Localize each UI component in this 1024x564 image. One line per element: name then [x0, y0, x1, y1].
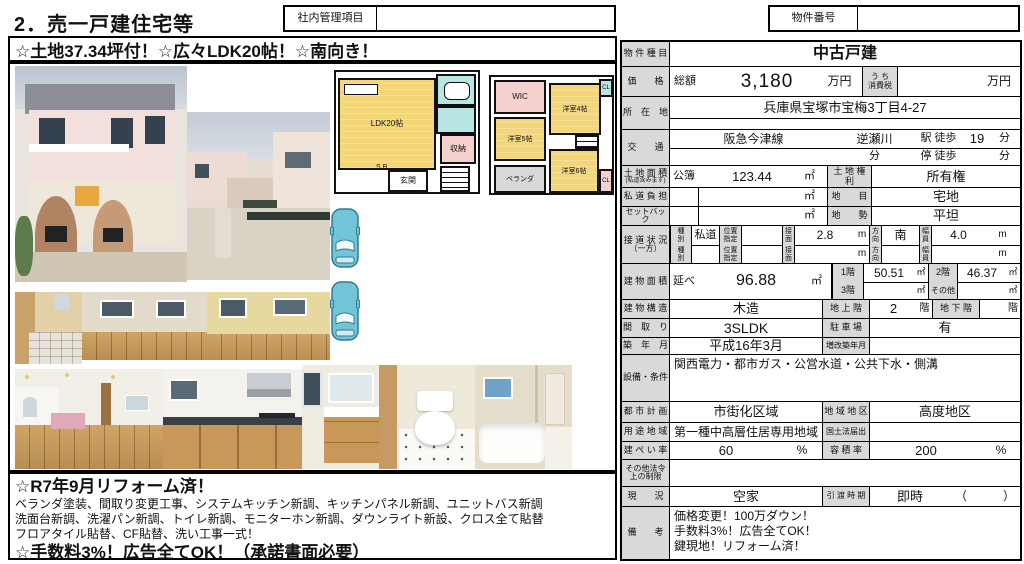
label-price: 価 格: [622, 67, 670, 96]
stairs-2f: [575, 135, 599, 149]
room-west5: 洋室5帖: [494, 117, 546, 161]
private-road-value: [699, 188, 792, 206]
road2-face-unit: m: [855, 245, 869, 264]
room-ldk-label: LDK20帖: [371, 120, 403, 128]
remarks-line-1: 価格変更！100万ダウン！: [674, 509, 814, 524]
row-coverage: 建 ぺ い 率 60 % 容 積 率 200 %: [622, 441, 1020, 459]
row-property-type: 物 件 種 目 中古戸建: [622, 42, 1020, 66]
building-total-label: 延べ: [670, 264, 710, 299]
label-city-plan: 都 市 計 画: [622, 402, 670, 422]
building-f2-value: 46.37: [958, 264, 1006, 282]
label-road-contact: 接 道 状 況 （一方）: [622, 226, 670, 263]
road-dir-label: 方 向: [869, 226, 882, 245]
structure-value: 木造: [670, 300, 822, 318]
setback-tag: [670, 207, 699, 225]
below-ground-value: [980, 300, 1006, 318]
row-land-area: 土 地 面 積 (私道含みます) 公簿 123.44 ㎡ 土 地 権 利 所有権: [622, 165, 1020, 187]
photo-kitchen: [163, 369, 310, 469]
row-remarks: 備 考 価格変更！100万ダウン！ 手数料3%！広告全てOK！ 鍵現地！リフォー…: [622, 506, 1020, 559]
remarks-line-3: 鍵現地！リフォーム済！: [674, 539, 806, 554]
access-bus-min-unit: 分: [837, 148, 912, 166]
remarks-value: 価格変更！100万ダウン！ 手数料3%！広告全てOK！ 鍵現地！リフォーム済！: [670, 507, 1020, 559]
coverage-value: 60: [670, 442, 782, 459]
property-detail-table: 物 件 種 目 中古戸建 価 格 総額 3,180 万円 う ち 消費税 万円 …: [620, 40, 1022, 561]
label-access: 交 通: [622, 130, 670, 165]
layout-value: 3SLDK: [670, 319, 822, 337]
note-line-3: 洗面台新調、洗濯パン新調、トイレ新調、モニターホン新調、ダウンライト新設、クロス…: [15, 512, 610, 527]
building-f1-value: 50.51: [864, 264, 914, 282]
built-date-value: 平成16年3月: [670, 338, 822, 354]
price-tax-label: う ち 消費税: [862, 67, 898, 96]
row-setback: セットバック ㎡ 地 勢 平坦: [622, 206, 1020, 225]
room-west4-label: 洋室4帖: [563, 106, 588, 113]
price-unit: 万円: [817, 67, 862, 96]
room-entrance: 玄関: [388, 170, 428, 192]
room-bath: [436, 74, 476, 106]
building-f2-label: 2階: [928, 264, 958, 282]
property-number-value: [858, 7, 1018, 30]
building-f3-unit: ㎡: [914, 282, 928, 300]
photo-exterior-driveway: [187, 112, 330, 280]
row-road-contact: 接 道 状 況 （一方） 種 別 私道 位置 指定 接 面 2.8 m 方 向 …: [622, 225, 1020, 263]
building-f2-unit: ㎡: [1006, 264, 1020, 282]
room-storage-label: 収納: [450, 145, 466, 153]
land-category-value: 宅地: [872, 188, 1020, 206]
photo-living-room: [15, 369, 163, 469]
room-wic-label: WIC: [512, 93, 528, 101]
terrain-label: 地 勢: [827, 207, 872, 225]
closet-top-label: CL: [602, 85, 610, 91]
room-west5-label: 洋室5帖: [508, 136, 533, 143]
photo-bathroom: [475, 365, 572, 469]
row-other-law: その他法令 上の制限: [622, 459, 1020, 486]
below-ground-label: 地 下 階: [932, 300, 980, 318]
land-category-label: 地 目: [827, 188, 872, 206]
room-west4: 洋室4帖: [549, 83, 601, 135]
road-dir-value: 南: [882, 226, 919, 245]
car-top-view-icon: [330, 280, 360, 342]
road2-width-unit: m: [985, 245, 1020, 264]
floorplan-2f: WIC 洋室4帖 CL 洋室5帖 ベランダ 洋室6帖 CL: [489, 75, 614, 195]
room-entrance-label: 玄関: [400, 177, 416, 185]
photo-entrance-hall: [15, 292, 82, 364]
label-coverage: 建 ぺ い 率: [622, 442, 670, 459]
land-rights-label: 土 地 権 利: [827, 166, 872, 187]
access-walk-label: 駅 徒歩: [912, 130, 965, 148]
delivery-paren: （ ）: [950, 487, 1020, 506]
land-area-value: 123.44: [712, 166, 792, 187]
row-facilities: 設備・条件 関西電力・都市ガス・公営水道・公共下水・側溝: [622, 354, 1020, 401]
closet-bottom-label: CL: [602, 178, 610, 184]
road-pos-value: [742, 226, 782, 245]
label-building-area: 建 物 面 積: [622, 264, 670, 299]
closet-top: CL: [599, 79, 613, 97]
label-address: 所 在 地: [622, 97, 670, 129]
closet-bottom: CL: [599, 169, 613, 193]
photo-toilet: [379, 365, 475, 469]
setback-value: [699, 207, 792, 225]
photo-bedroom-2: [207, 292, 330, 360]
catch-copy: ☆土地37.34坪付！☆広々LDK20帖！☆南向き！: [8, 36, 617, 62]
label-other-law: その他法令 上の制限: [622, 460, 670, 486]
internal-management-label: 社内管理項目: [285, 7, 377, 30]
other-law-value: [670, 460, 1020, 486]
label-status: 現 況: [622, 487, 670, 506]
status-value: 空家: [670, 487, 822, 506]
road2-type-label: 種 別: [670, 245, 692, 264]
building-f1-label: 1階: [832, 264, 864, 282]
road-width-unit: m: [985, 226, 1020, 245]
label-setback: セットバック: [622, 207, 670, 225]
above-floor-unit: 階: [917, 300, 932, 318]
room-washroom: [436, 106, 476, 134]
page-title: 2．売一戸建住宅等: [14, 8, 194, 37]
internal-management-value: [377, 7, 614, 30]
road-type-label: 種 別: [670, 226, 692, 245]
stairs-1f: [440, 166, 470, 192]
room-wic: WIC: [494, 80, 546, 114]
road2-face-label: 接 面: [782, 245, 795, 264]
photo-panel: LDK20帖 収納 S.B 玄関 WIC 洋室4帖 CL 洋室5帖 ベランダ 洋…: [8, 62, 617, 472]
row-built-date: 築 年 月 平成16年3月 増改築年月: [622, 337, 1020, 354]
row-status: 現 況 空家 引 渡 時 期 即時 （ ）: [622, 486, 1020, 506]
row-city-plan: 都 市 計 画 市街化区域 地 域 地 区 高度地区: [622, 401, 1020, 422]
building-other-unit: ㎡: [1006, 282, 1020, 300]
delivery-value: 即時: [870, 487, 950, 506]
land-area-label-note: (私道含みます): [626, 178, 666, 184]
land-law-label: 国土法届出: [822, 423, 870, 441]
reform-note: ☆R7年9月リフォーム済！ ベランダ塗装、間取り変更工事、システムキッチン新調、…: [8, 472, 617, 560]
far-label: 容 積 率: [822, 442, 870, 459]
label-built-date: 築 年 月: [622, 338, 670, 354]
land-law-value: [870, 423, 1020, 441]
access-stop-min-unit: 分: [989, 148, 1020, 166]
delivery-label: 引 渡 時 期: [822, 487, 870, 506]
price-value: 3,180: [717, 67, 817, 96]
label-structure: 建 物 構 造: [622, 300, 670, 318]
road-pos-label: 位置 指定: [719, 226, 742, 245]
property-number-label: 物件番号: [770, 7, 858, 30]
note-line-1: ☆R7年9月リフォーム済！: [15, 476, 610, 497]
row-private-road: 私 道 負 担 ㎡ 地 目 宅地: [622, 187, 1020, 206]
room-sb-label: S.B: [376, 164, 387, 171]
building-f1-unit: ㎡: [914, 264, 928, 282]
photo-exterior-front: [15, 66, 187, 282]
road-face-unit: m: [855, 226, 869, 245]
room-west6: 洋室6帖: [549, 149, 599, 193]
below-floor-unit: 階: [1006, 300, 1020, 318]
note-line-5: ☆手数料3%！広告全てOK！（承諾書面必要）: [15, 542, 610, 563]
far-value: 200: [870, 442, 982, 459]
road2-pos-label: 位置 指定: [719, 245, 742, 264]
label-facilities: 設備・条件: [622, 355, 670, 401]
row-price: 価 格 総額 3,180 万円 う ち 消費税 万円: [622, 66, 1020, 96]
remarks-line-2: 手数料3%！広告全てOK！: [674, 524, 817, 539]
building-f3-label: 3階: [832, 282, 864, 300]
renovation-value: [870, 338, 1020, 354]
access-station: 逆瀬川: [837, 130, 912, 148]
property-number-box: 物件番号: [768, 5, 1020, 32]
road-face-value: 2.8: [795, 226, 855, 245]
row-use-district: 用 途 地 域 第一種中高層住居専用地域 国土法届出: [622, 422, 1020, 441]
building-area-unit: ㎡: [802, 264, 832, 299]
label-use-district: 用 途 地 域: [622, 423, 670, 441]
private-road-tag: [670, 188, 699, 206]
facilities-value: 関西電力・都市ガス・公営水道・公共下水・側溝: [670, 355, 1020, 401]
land-area-label-main: 土 地 面 積: [624, 169, 668, 178]
road-width-label: 幅 員: [919, 226, 932, 245]
access-line: 阪急今津線: [670, 130, 837, 148]
photo-bedroom-1: [82, 292, 207, 360]
row-layout: 間 取 り 3SLDK 駐 車 場 有: [622, 318, 1020, 337]
terrain-value: 平坦: [872, 207, 1020, 225]
renovation-label: 増改築年月: [822, 338, 870, 354]
room-storage: 収納: [440, 134, 476, 164]
note-line-2: ベランダ塗装、間取り変更工事、システムキッチン新調、キッチンパネル新調、ユニット…: [15, 497, 610, 512]
district-value: 高度地区: [870, 402, 1020, 422]
price-tax-unit: 万円: [978, 67, 1020, 96]
private-road-unit: ㎡: [792, 188, 827, 206]
road-label-sub: （一方）: [630, 245, 662, 253]
road-face-label: 接 面: [782, 226, 795, 245]
coverage-unit: %: [782, 442, 822, 459]
access-walk-min: 19: [965, 130, 989, 148]
above-ground-label: 地 上 階: [822, 300, 870, 318]
road-width-value: 4.0: [932, 226, 985, 245]
label-property-type: 物 件 種 目: [622, 42, 670, 66]
road2-dir-label: 方 向: [869, 245, 882, 264]
floorplan-1f: LDK20帖 収納 S.B 玄関: [334, 70, 480, 194]
row-access: 交 通 阪急今津線 逆瀬川 駅 徒歩 19 分 分 停 徒歩 分: [622, 129, 1020, 165]
note-line-4: フロアタイル貼替、CF貼替、洗い工事一式！: [15, 527, 610, 542]
internal-management-box: 社内管理項目: [283, 5, 616, 32]
land-rights-value: 所有権: [872, 166, 1020, 187]
car-top-view-icon: [330, 207, 360, 269]
balcony: ベランダ: [494, 165, 546, 193]
land-area-unit: ㎡: [792, 166, 827, 187]
city-plan-value: 市街化区域: [670, 402, 822, 422]
price-total-label: 総額: [670, 67, 717, 96]
access-min-unit: 分: [989, 130, 1020, 148]
land-register-label: 公簿: [670, 166, 712, 187]
setback-unit: ㎡: [792, 207, 827, 225]
access-stop-label: 停 徒歩: [912, 148, 965, 166]
price-tax-value: [898, 67, 978, 96]
listing-sheet: 2．売一戸建住宅等 社内管理項目 物件番号 ☆土地37.34坪付！☆広々LDK2…: [0, 0, 1024, 564]
building-other-label: その他: [928, 282, 958, 300]
far-unit: %: [982, 442, 1020, 459]
row-building-area: 建 物 面 積 延べ 96.88 ㎡ 1階 50.51 ㎡ 2階 46.37 ㎡…: [622, 263, 1020, 299]
above-ground-value: 2: [870, 300, 917, 318]
label-private-road: 私 道 負 担: [622, 188, 670, 206]
photo-washbasin: [302, 365, 379, 469]
value-property-type: 中古戸建: [670, 42, 1020, 66]
label-remarks: 備 考: [622, 507, 670, 559]
room-west6-label: 洋室6帖: [562, 168, 587, 175]
label-layout: 間 取 り: [622, 319, 670, 337]
balcony-label: ベランダ: [506, 176, 534, 183]
parking-label: 駐 車 場: [822, 319, 870, 337]
use-district-value: 第一種中高層住居専用地域: [670, 423, 822, 441]
road2-width-label: 幅 員: [919, 245, 932, 264]
road-type-value: 私道: [692, 226, 719, 245]
parking-value: 有: [870, 319, 1020, 337]
row-structure: 建 物 構 造 木造 地 上 階 2 階 地 下 階 階: [622, 299, 1020, 318]
label-land-area: 土 地 面 積 (私道含みます): [622, 166, 670, 187]
address-value: 兵庫県宝塚市宝梅3丁目4-27: [670, 97, 1020, 119]
district-label: 地 域 地 区: [822, 402, 870, 422]
building-area-value: 96.88: [710, 264, 802, 299]
row-address: 所 在 地 兵庫県宝塚市宝梅3丁目4-27: [622, 96, 1020, 129]
